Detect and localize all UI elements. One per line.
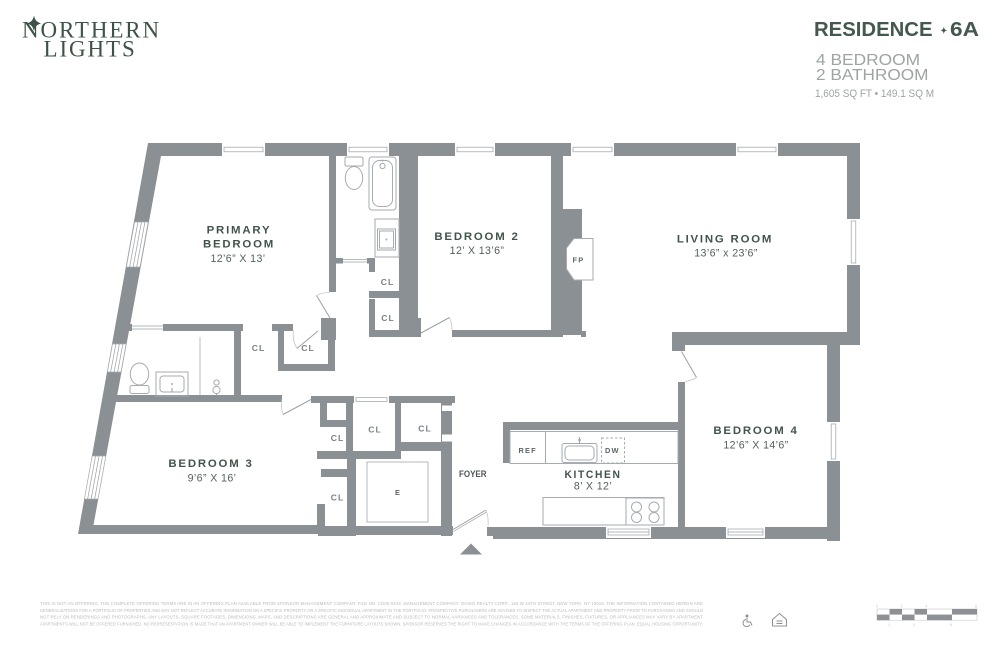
svg-text:PRIMARY: PRIMARY (207, 225, 272, 237)
svg-text:CL: CL (252, 343, 265, 353)
svg-text:CL: CL (418, 424, 431, 434)
svg-text:LIGHTS: LIGHTS (44, 37, 137, 62)
svg-text:THIS IS NOT AN OFFERING. THE C: THIS IS NOT AN OFFERING. THE COMPLETE OF… (40, 601, 703, 606)
svg-text:12’6” X 14’6”: 12’6” X 14’6” (723, 440, 788, 452)
svg-text:E: E (395, 488, 401, 497)
svg-text:12’6” X 13’: 12’6” X 13’ (210, 253, 265, 265)
svg-text:LIVING ROOM: LIVING ROOM (677, 234, 773, 246)
svg-text:0: 0 (876, 605, 878, 609)
svg-text:FP: FP (573, 256, 585, 265)
svg-text:3: 3 (913, 623, 915, 627)
svg-text:6A: 6A (950, 18, 979, 41)
svg-text:13’6” x 23’6”: 13’6” x 23’6” (694, 248, 758, 260)
svg-text:8: 8 (975, 605, 977, 609)
svg-text:RESIDENCE: RESIDENCE (814, 18, 933, 41)
svg-text:KITCHEN: KITCHEN (565, 469, 622, 481)
svg-text:REF: REF (519, 446, 537, 455)
svg-text:CL: CL (331, 433, 344, 443)
svg-text:CL: CL (368, 425, 381, 435)
svg-text:CL: CL (381, 313, 394, 323)
svg-text:CL: CL (331, 493, 344, 503)
svg-text:BEDROOM 3: BEDROOM 3 (168, 458, 253, 470)
svg-text:FOYER: FOYER (459, 469, 487, 479)
svg-text:DW: DW (605, 446, 620, 455)
svg-text:GENERALIZATIONS FOR A PORTFOLI: GENERALIZATIONS FOR A PORTFOLIO OF PROPE… (40, 608, 704, 613)
svg-text:8’ X 12’: 8’ X 12’ (574, 481, 612, 493)
svg-text:1,605 SQ FT • 149.1 SQ M: 1,605 SQ FT • 149.1 SQ M (815, 88, 934, 100)
svg-text:6: 6 (950, 623, 952, 627)
svg-text:BEDROOM 2: BEDROOM 2 (434, 231, 519, 243)
svg-text:APARTMENTS WILL NOT BE OFFERED: APARTMENTS WILL NOT BE OFFERED FURNISHED… (40, 621, 703, 626)
svg-text:CL: CL (301, 343, 314, 353)
svg-text:12’ X 13’6”: 12’ X 13’6” (450, 245, 505, 257)
svg-text:1: 1 (888, 623, 890, 627)
svg-text:2: 2 (901, 605, 903, 609)
svg-text:9’6” X 16’: 9’6” X 16’ (188, 473, 237, 485)
svg-text:NOT RELY ON RENDERINGS AND PHO: NOT RELY ON RENDERINGS AND PHOTOGRAPHS. … (40, 615, 703, 620)
svg-text:BEDROOM 4: BEDROOM 4 (713, 425, 798, 437)
svg-text:BEDROOM: BEDROOM (203, 239, 275, 251)
svg-text:CL: CL (381, 277, 394, 287)
svg-text:4: 4 (926, 605, 928, 609)
svg-text:2 BATHROOM: 2 BATHROOM (816, 67, 929, 84)
